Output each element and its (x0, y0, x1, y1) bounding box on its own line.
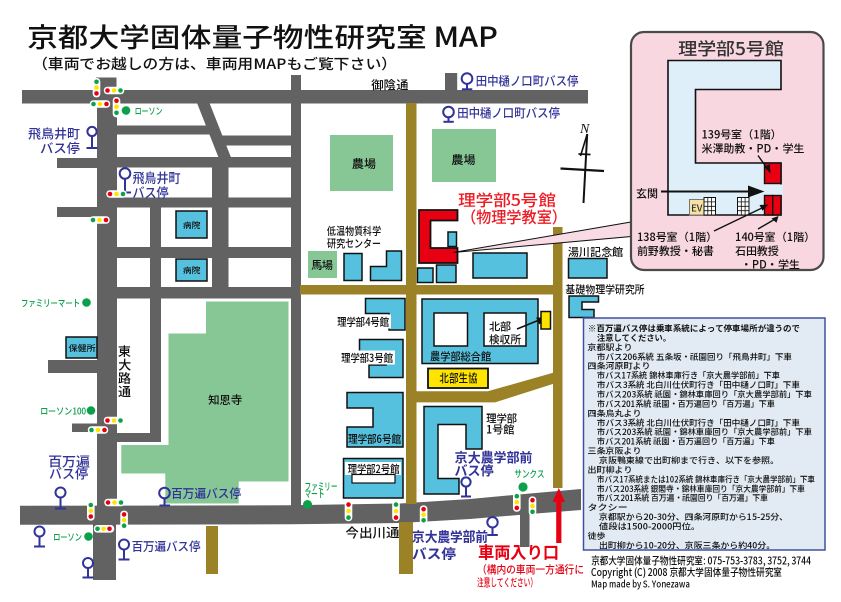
svg-text:値段は1500-2000円位。: 値段は1500-2000円位。 (599, 521, 700, 533)
svg-text:田中樋ノ口町バス停: 田中樋ノ口町バス停 (457, 103, 560, 122)
svg-text:バス停: バス停 (412, 544, 456, 564)
svg-text:農学部総合館: 農学部総合館 (430, 349, 491, 365)
svg-text:理学部3号館: 理学部3号館 (341, 350, 393, 366)
svg-text:バス停: バス停 (40, 138, 80, 157)
svg-text:ローソン: ローソン (53, 530, 82, 544)
svg-text:馬場: 馬場 (311, 257, 333, 273)
svg-text:米澤助教・PD・学生: 米澤助教・PD・学生 (702, 141, 805, 157)
svg-text:玄関: 玄関 (636, 186, 658, 202)
svg-text:（物理学教室）: （物理学教室） (461, 204, 567, 228)
svg-text:バス停: バス停 (133, 182, 169, 202)
svg-text:バス停: バス停 (455, 460, 494, 480)
svg-text:サンクス: サンクス (515, 466, 545, 481)
svg-text:ローソン100: ローソン100 (40, 404, 86, 418)
svg-text:百万遍バス停: 百万遍バス停 (132, 536, 201, 555)
svg-text:理学部5号館: 理学部5号館 (678, 36, 784, 61)
svg-text:ローソン: ローソン (135, 104, 163, 118)
svg-text:基礎物理学研究所: 基礎物理学研究所 (566, 282, 646, 298)
svg-text:田中樋ノ口町バス停: 田中樋ノ口町バス停 (476, 70, 579, 89)
svg-text:病院: 病院 (183, 265, 201, 277)
svg-text:Map made by S. Yonezawa: Map made by S. Yonezawa (591, 577, 690, 591)
svg-text:病院: 病院 (183, 220, 201, 232)
svg-text:ファミリーマート: ファミリーマート (21, 296, 80, 310)
svg-text:御陰通: 御陰通 (371, 75, 409, 94)
svg-text:・PD・学生: ・PD・学生 (741, 257, 800, 273)
svg-text:今出川通: 今出川通 (346, 523, 400, 542)
svg-text:京都大学固体量子物性研究室 MAP: 京都大学固体量子物性研究室 MAP (27, 16, 498, 55)
svg-text:湯川記念館: 湯川記念館 (568, 244, 623, 260)
svg-text:農場: 農場 (452, 151, 476, 168)
svg-text:研究センター: 研究センター (326, 236, 381, 252)
svg-text:理学部6号館: 理学部6号館 (348, 431, 401, 447)
svg-text:検収所: 検収所 (489, 332, 522, 348)
svg-text:（車両でお越しの方は、車両用MAPもご覧下さい）: （車両でお越しの方は、車両用MAPもご覧下さい） (32, 53, 397, 74)
svg-text:知恩寺: 知恩寺 (208, 392, 243, 408)
svg-text:車両入り口: 車両入り口 (478, 539, 559, 564)
svg-text:農場: 農場 (352, 155, 376, 172)
svg-text:注意してください）: 注意してください） (477, 575, 537, 591)
svg-text:北部生協: 北部生協 (439, 370, 478, 387)
svg-text:EV: EV (691, 201, 703, 215)
svg-text:出町柳から10-20分、京阪三条から約40分。: 出町柳から10-20分、京阪三条から約40分。 (599, 539, 775, 551)
svg-text:N: N (579, 122, 590, 137)
svg-text:理学部4号館: 理学部4号館 (337, 314, 389, 330)
svg-text:前野教授・秘書: 前野教授・秘書 (637, 243, 714, 259)
svg-text:1号館: 1号館 (486, 422, 514, 438)
svg-text:バス停: バス停 (49, 463, 88, 483)
svg-text:マート: マート (305, 486, 325, 501)
svg-text:百万遍バス停: 百万遍バス停 (171, 483, 241, 502)
svg-text:通: 通 (118, 382, 131, 401)
svg-text:保健所: 保健所 (68, 342, 96, 355)
